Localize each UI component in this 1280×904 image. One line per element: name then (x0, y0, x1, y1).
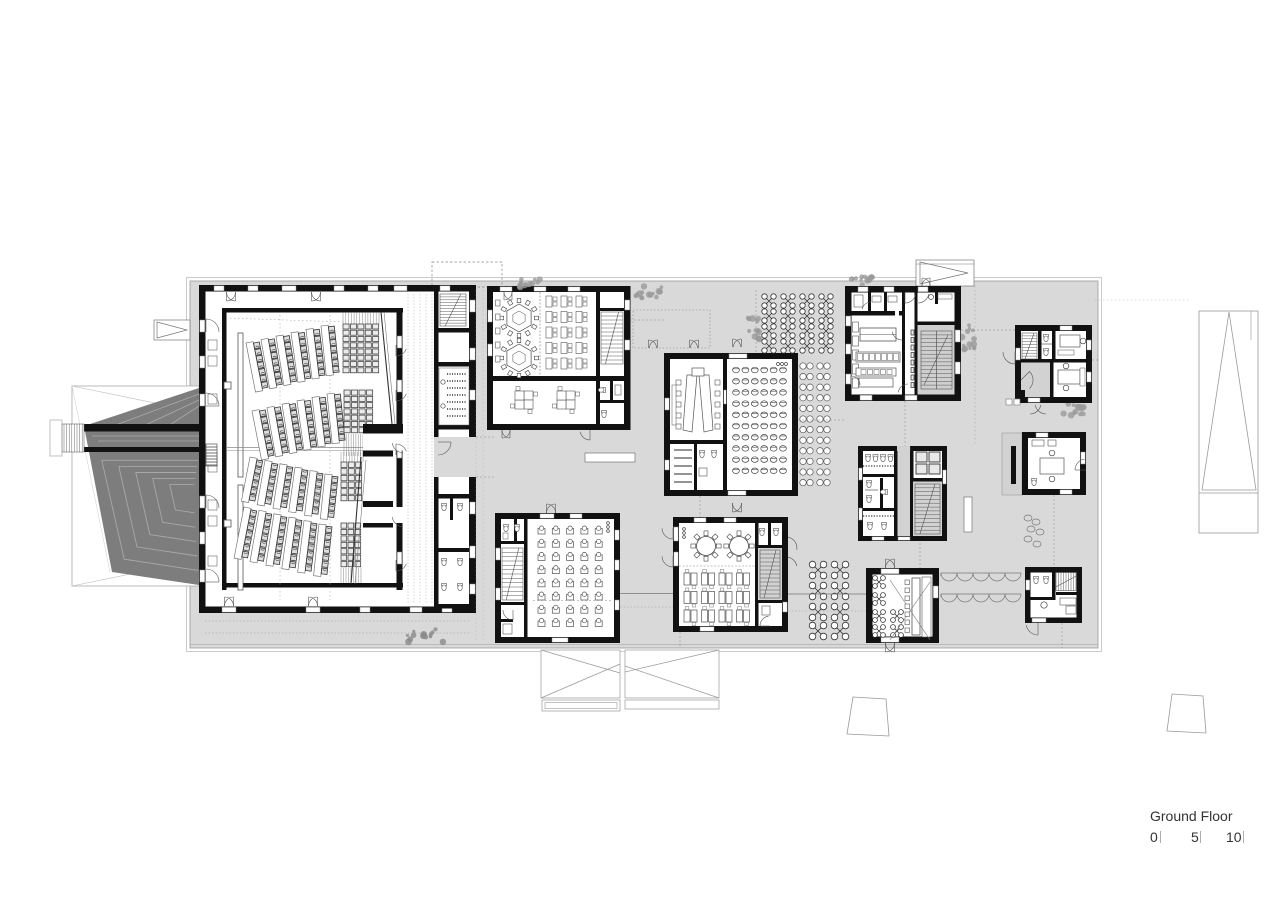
svg-text:0: 0 (1150, 829, 1158, 845)
svg-text:5: 5 (1191, 829, 1199, 845)
svg-text:Ground Floor: Ground Floor (1150, 808, 1233, 824)
svg-text:10: 10 (1226, 829, 1242, 845)
